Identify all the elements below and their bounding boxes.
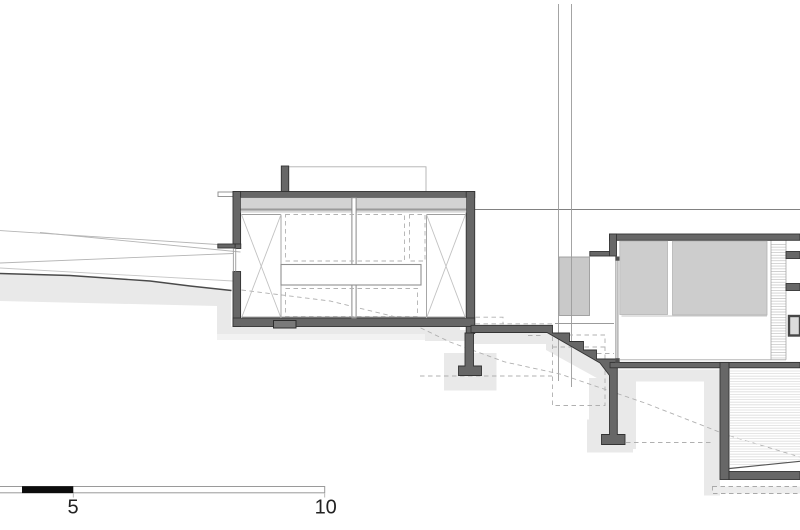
svg-text:5: 5 (67, 497, 78, 519)
svg-text:10: 10 (315, 497, 337, 519)
